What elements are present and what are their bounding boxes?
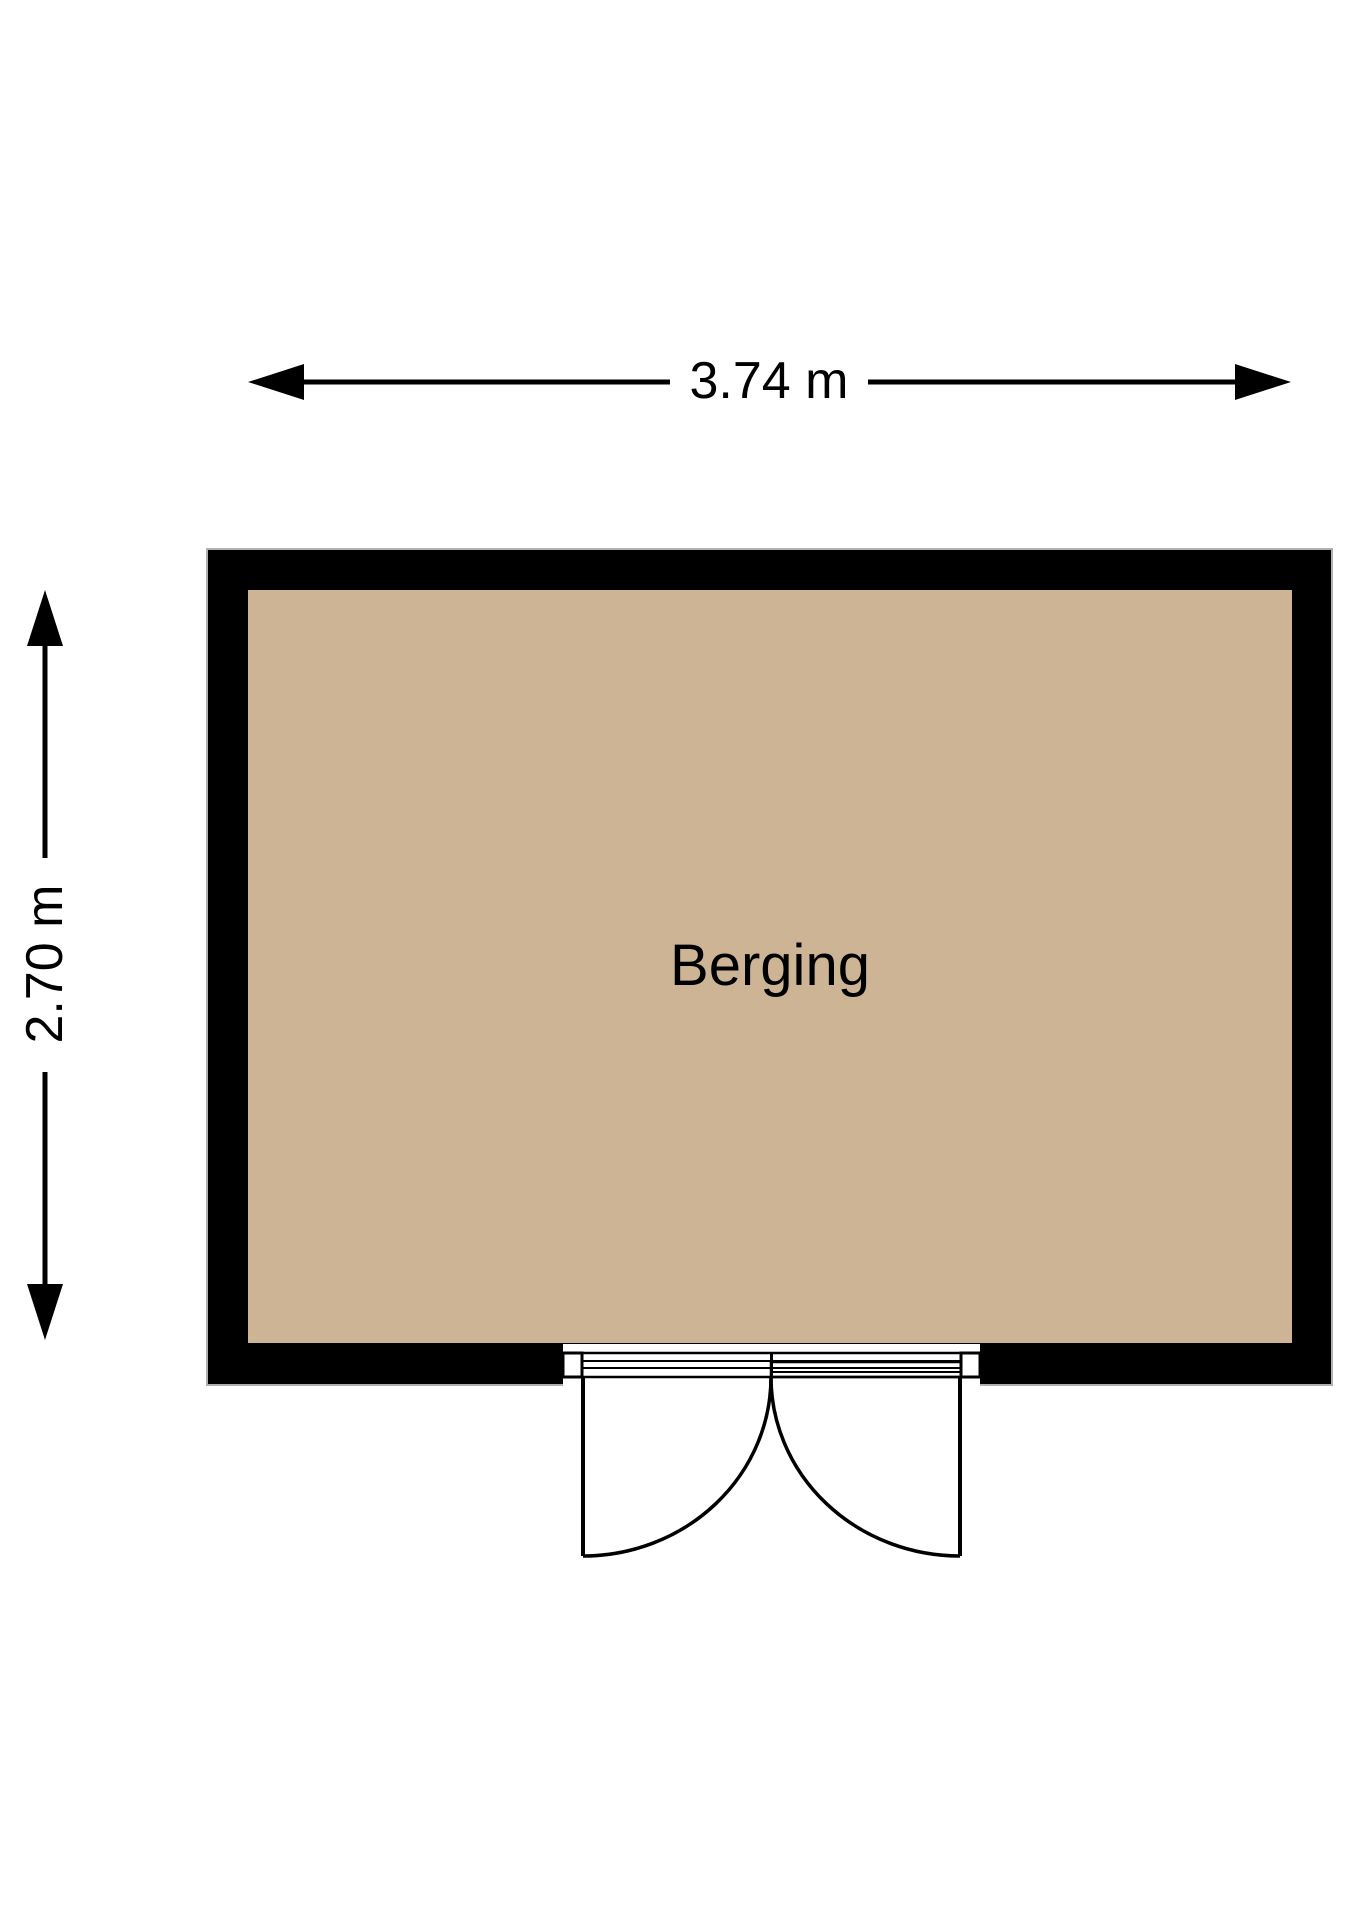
arrowhead-up-icon [27, 590, 63, 646]
door-jamb-left [563, 1353, 582, 1377]
dimension-height-label: 2.70 m [19, 885, 71, 1044]
dimension-width-label: 3.74 m [690, 355, 849, 407]
floorplan-canvas: 3.74 m 2.70 m Berging [0, 0, 1358, 1920]
door-jamb-right [961, 1353, 980, 1377]
double-door [563, 1344, 980, 1556]
door-swing-arc-right [771, 1377, 960, 1556]
arrowhead-left-icon [248, 364, 304, 400]
arrowhead-right-icon [1235, 364, 1291, 400]
door-swing-arc-left [583, 1377, 771, 1556]
arrowhead-down-icon [27, 1284, 63, 1340]
room-label: Berging [670, 937, 870, 995]
